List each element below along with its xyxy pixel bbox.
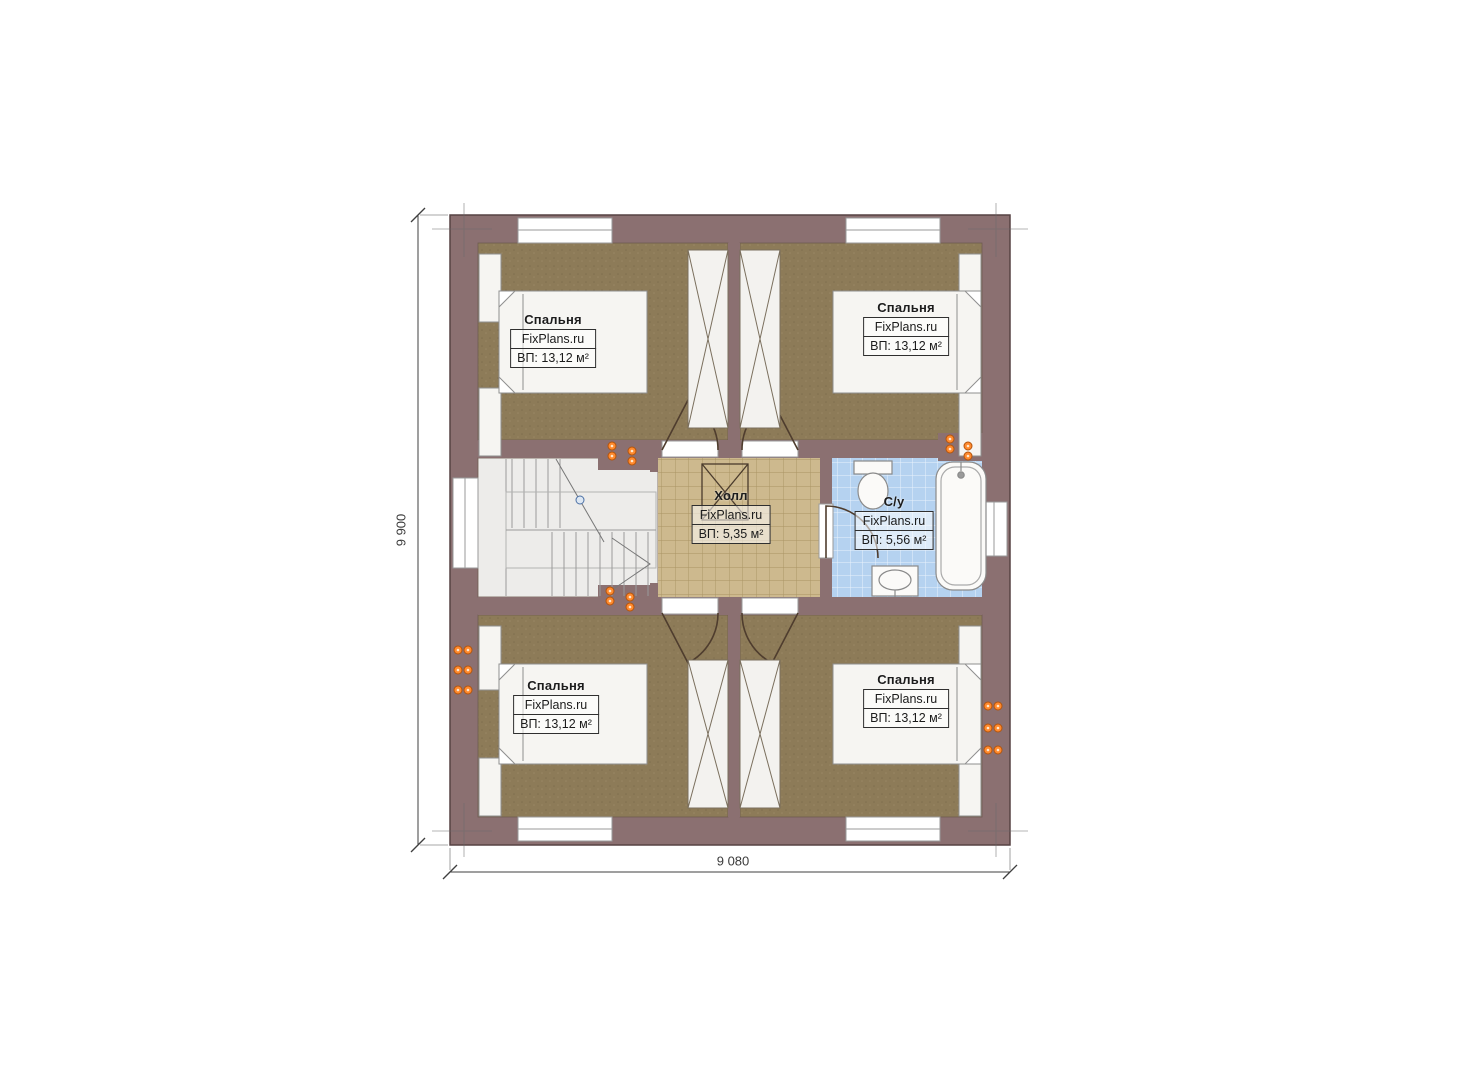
wardrobe: [740, 250, 780, 428]
wall-upper-divider: [478, 440, 982, 458]
wall-center-bottom: [728, 615, 740, 817]
brand-watermark: FixPlans.ru: [692, 505, 771, 525]
room-area: ВП: 5,35 м²: [692, 524, 771, 544]
door-opening-bedroom-bl: [662, 598, 718, 614]
room-label-bathroom: С/у FixPlans.ru ВП: 5,56 м²: [855, 494, 934, 550]
room-name: Холл: [692, 488, 771, 503]
room-area: ВП: 13,12 м²: [513, 714, 599, 734]
brand-watermark: FixPlans.ru: [510, 329, 596, 349]
dimension-height-label: 9 900: [394, 514, 409, 547]
door-opening-bedroom-br: [742, 598, 798, 614]
room-name: С/у: [855, 494, 934, 509]
brand-watermark: FixPlans.ru: [863, 689, 949, 709]
brand-watermark: FixPlans.ru: [863, 317, 949, 337]
door-opening-bedroom-tr: [742, 441, 798, 457]
room-name: Спальня: [863, 672, 949, 687]
floor-plan-page: Спальня FixPlans.ru ВП: 13,12 м² Спальня…: [0, 0, 1474, 1080]
room-label-bedroom-top-left: Спальня FixPlans.ru ВП: 13,12 м²: [510, 312, 596, 368]
dimension-width-label: 9 080: [717, 854, 750, 869]
room-label-hall: Холл FixPlans.ru ВП: 5,35 м²: [692, 488, 771, 544]
room-name: Спальня: [510, 312, 596, 327]
room-area: ВП: 5,56 м²: [855, 530, 934, 550]
wall-center-top: [728, 243, 740, 440]
door-opening-bedroom-tl: [662, 441, 718, 457]
wall-lower-divider: [478, 597, 982, 615]
bathtub: [936, 462, 986, 590]
wardrobe: [688, 660, 728, 808]
sink: [872, 566, 918, 597]
room-area: ВП: 13,12 м²: [510, 348, 596, 368]
room-name: Спальня: [863, 300, 949, 315]
wardrobe: [740, 660, 780, 808]
room-name: Спальня: [513, 678, 599, 693]
room-label-bedroom-bottom-left: Спальня FixPlans.ru ВП: 13,12 м²: [513, 678, 599, 734]
brand-watermark: FixPlans.ru: [513, 695, 599, 715]
wardrobe: [688, 250, 728, 428]
room-label-bedroom-bottom-right: Спальня FixPlans.ru ВП: 13,12 м²: [863, 672, 949, 728]
dimension-line-left: [411, 208, 448, 852]
wall-block-sockets-a: [598, 440, 652, 470]
brand-watermark: FixPlans.ru: [855, 511, 934, 531]
room-area: ВП: 13,12 м²: [863, 336, 949, 356]
room-area: ВП: 13,12 м²: [863, 708, 949, 728]
room-label-bedroom-top-right: Спальня FixPlans.ru ВП: 13,12 м²: [863, 300, 949, 356]
